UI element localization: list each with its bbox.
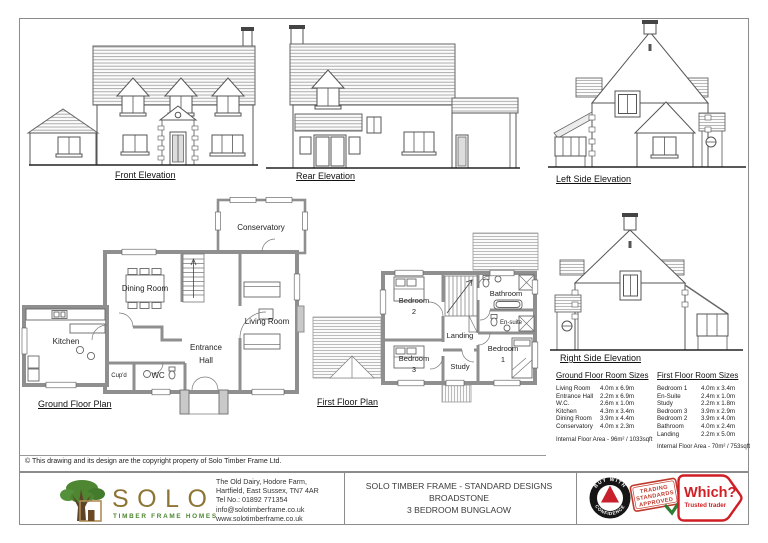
room-label: WC xyxy=(151,371,165,380)
main-roof xyxy=(290,44,455,105)
chimney-breast xyxy=(297,306,304,332)
table-row: En-Suite2.4m x 1.0m xyxy=(657,393,755,401)
svg-text:Trusted trader: Trusted trader xyxy=(685,502,727,509)
which-trusted-trader-badge-icon: Which? Trusted trader xyxy=(679,476,742,521)
room-label: 1 xyxy=(501,355,505,364)
conservatory-lean-to xyxy=(685,285,728,350)
ground-floor-plan-drawing: Conservatory Kitchen Dining Room Living … xyxy=(22,188,314,418)
table-row: Living Room4.0m x 6.9m xyxy=(556,385,654,393)
window xyxy=(349,137,360,154)
conservatory-roof-plan xyxy=(473,233,538,270)
front-elevation-label: Front Elevation xyxy=(115,170,176,180)
table-row: Bedroom 33.9m x 2.9m xyxy=(657,408,755,416)
room-label: Study xyxy=(450,362,469,371)
company-logo: SOLO TIMBER FRAME HOMES xyxy=(58,477,218,523)
gable-end xyxy=(592,32,708,103)
right-side-elevation-label: Right Side Elevation xyxy=(560,353,641,363)
ground-floor-sizes-table: Ground Floor Room Sizes Living Room4.0m … xyxy=(556,371,654,443)
room-label: Dining Room xyxy=(122,284,169,293)
first-floor-sizes-table: First Floor Room Sizes Bedroom 14.0m x 3… xyxy=(657,371,755,450)
solo-wordmark: SOLO xyxy=(112,485,215,513)
table-title: First Floor Room Sizes xyxy=(657,371,755,380)
window xyxy=(210,135,245,156)
table-row: Bedroom 23.9m x 4.0m xyxy=(657,415,755,423)
left-side-elevation-drawing xyxy=(546,20,748,185)
rear-extension xyxy=(452,98,518,168)
room-label: Living Room xyxy=(245,317,290,326)
window xyxy=(367,117,381,133)
window xyxy=(620,271,641,300)
logo-tree-icon xyxy=(60,480,105,521)
room-label: 3 xyxy=(412,365,416,374)
room-label: Bedroom xyxy=(399,296,429,305)
room-label: Bedroom xyxy=(488,344,518,353)
room-label: Cup'd xyxy=(111,373,127,379)
french-doors xyxy=(314,135,346,168)
staircase xyxy=(183,254,204,302)
side-extension xyxy=(28,109,98,165)
table-row: Kitchen4.3m x 3.4m xyxy=(556,408,654,416)
company-address: The Old Dairy, Hodore Farm, Hartfield, E… xyxy=(216,478,319,524)
room-label: Kitchen xyxy=(53,337,80,346)
table-row: Bathroom4.0m x 2.4m xyxy=(657,423,755,431)
chimney-icon xyxy=(622,213,638,230)
chimney-icon xyxy=(289,25,305,46)
window xyxy=(615,91,640,117)
porch-roof-plan xyxy=(442,385,471,402)
title-block-divider xyxy=(576,473,577,524)
rear-elevation-label: Rear Elevation xyxy=(296,171,355,181)
staircase xyxy=(445,276,477,316)
copyright-note: © This drawing and its design are the co… xyxy=(25,458,281,465)
certification-badges: BUY WITH CONFIDENCE TRADING STANDARDS AP… xyxy=(580,472,745,524)
table-title: Ground Floor Room Sizes xyxy=(556,371,654,380)
project-title-line: SOLO TIMBER FRAME - STANDARD DESIGNS xyxy=(343,481,575,493)
buy-with-confidence-badge-icon: BUY WITH CONFIDENCE xyxy=(590,477,631,519)
drawing-sheet: Front Elevation Rear Elevation xyxy=(0,0,768,543)
first-floor-plan-drawing: Bedroom 2 Bedroom 3 Landing Study Bathro… xyxy=(310,230,550,422)
first-floor-plan-label: First Floor Plan xyxy=(317,397,378,407)
table-row: W.C.2.6m x 1.0m xyxy=(556,400,654,408)
table-row: Conservatory4.0m x 2.3m xyxy=(556,423,654,431)
window xyxy=(402,132,436,155)
logo-tagline: TIMBER FRAME HOMES xyxy=(113,513,218,520)
table-row: Bedroom 14.0m x 3.4m xyxy=(657,385,755,393)
svg-text:Which?: Which? xyxy=(684,485,736,501)
table-row: Entrance Hall2.2m x 6.9m xyxy=(556,393,654,401)
ground-floor-plan-label: Ground Floor Plan xyxy=(38,399,112,409)
right-side-elevation-drawing xyxy=(548,210,745,360)
room-label: Landing xyxy=(447,331,474,340)
project-design-name: BROADSTONE xyxy=(343,493,575,505)
sofa-icon xyxy=(244,334,280,349)
internal-floor-area: Internal Floor Area - 70m² / 753sqft xyxy=(657,444,755,450)
project-description: 3 BEDROOM BUNGLAOW xyxy=(343,505,575,517)
gable-vent xyxy=(649,44,652,51)
room-label: Bathroom xyxy=(490,289,523,298)
gable-vent xyxy=(629,241,632,248)
logo-door xyxy=(88,510,95,521)
room-label: Hall xyxy=(199,356,213,365)
table-row: Study2.2m x 1.8m xyxy=(657,400,755,408)
catslide-roof xyxy=(295,114,362,131)
left-side-elevation-label: Left Side Elevation xyxy=(556,174,631,184)
room-label: Entrance xyxy=(190,343,223,352)
project-title: SOLO TIMBER FRAME - STANDARD DESIGNS BRO… xyxy=(343,481,575,516)
room-label: 2 xyxy=(412,307,416,316)
chimney-icon xyxy=(642,20,658,34)
sofa-icon xyxy=(244,282,280,297)
front-elevation-drawing xyxy=(28,24,260,176)
conservatory-lean-to xyxy=(554,112,592,167)
trading-standards-stamp-icon: TRADING STANDARDS APPROVED xyxy=(630,478,680,512)
eaves-roof-band xyxy=(560,260,584,275)
window xyxy=(300,137,311,154)
table-row: Landing2.2m x 5.0m xyxy=(657,431,755,439)
sheet-inner-border-line xyxy=(20,455,546,456)
room-label: Bedroom xyxy=(399,354,429,363)
window xyxy=(121,135,149,155)
rear-elevation-drawing xyxy=(266,24,520,176)
room-label: En-suite xyxy=(500,320,523,326)
eaves-roof-band xyxy=(576,78,602,97)
room-label: Conservatory xyxy=(237,223,285,232)
chimney-icon xyxy=(241,27,254,46)
table-row: Dining Room3.9m x 4.4m xyxy=(556,415,654,423)
cupboard xyxy=(469,316,477,332)
internal-floor-area: Internal Floor Area - 96m² / 1033sqft xyxy=(556,437,654,443)
